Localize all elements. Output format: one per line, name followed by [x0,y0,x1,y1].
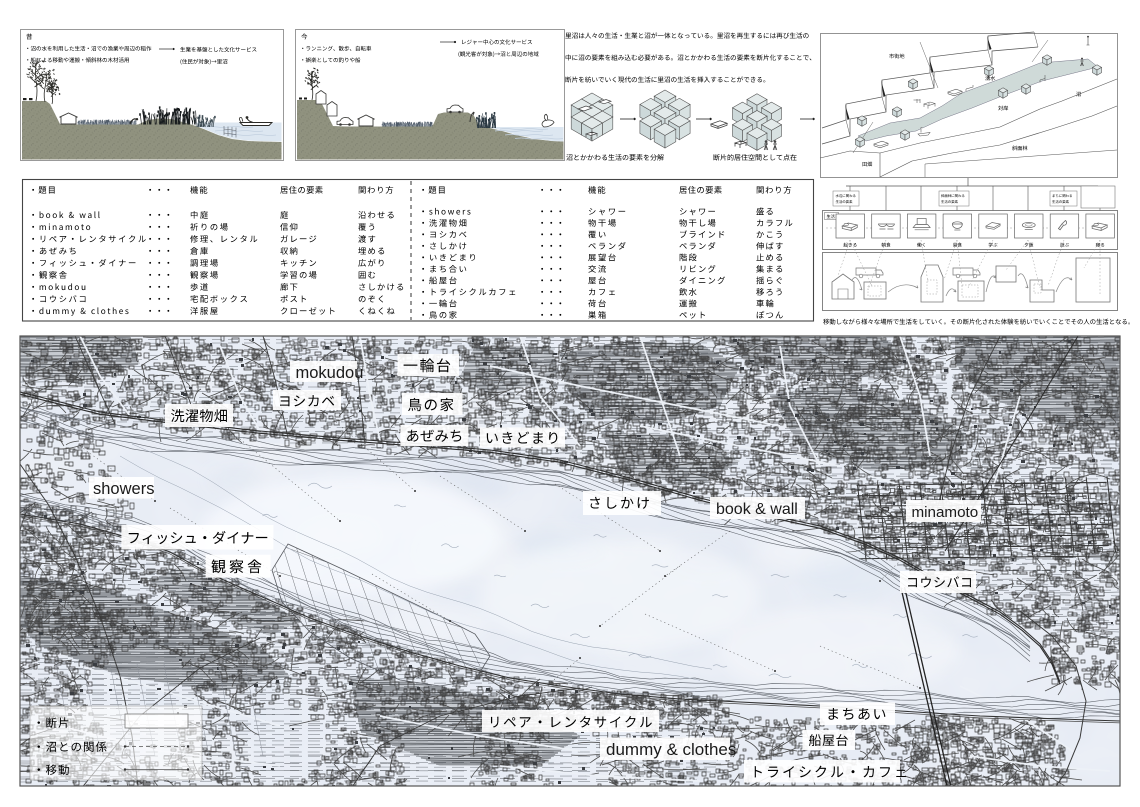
svg-text:dummy & clothes: dummy & clothes [606,740,736,759]
svg-text:showers: showers [93,480,154,498]
svg-text:minamoto: minamoto [912,504,979,521]
svg-text:mokudou: mokudou [296,364,364,382]
svg-text:book & wall: book & wall [716,501,798,518]
